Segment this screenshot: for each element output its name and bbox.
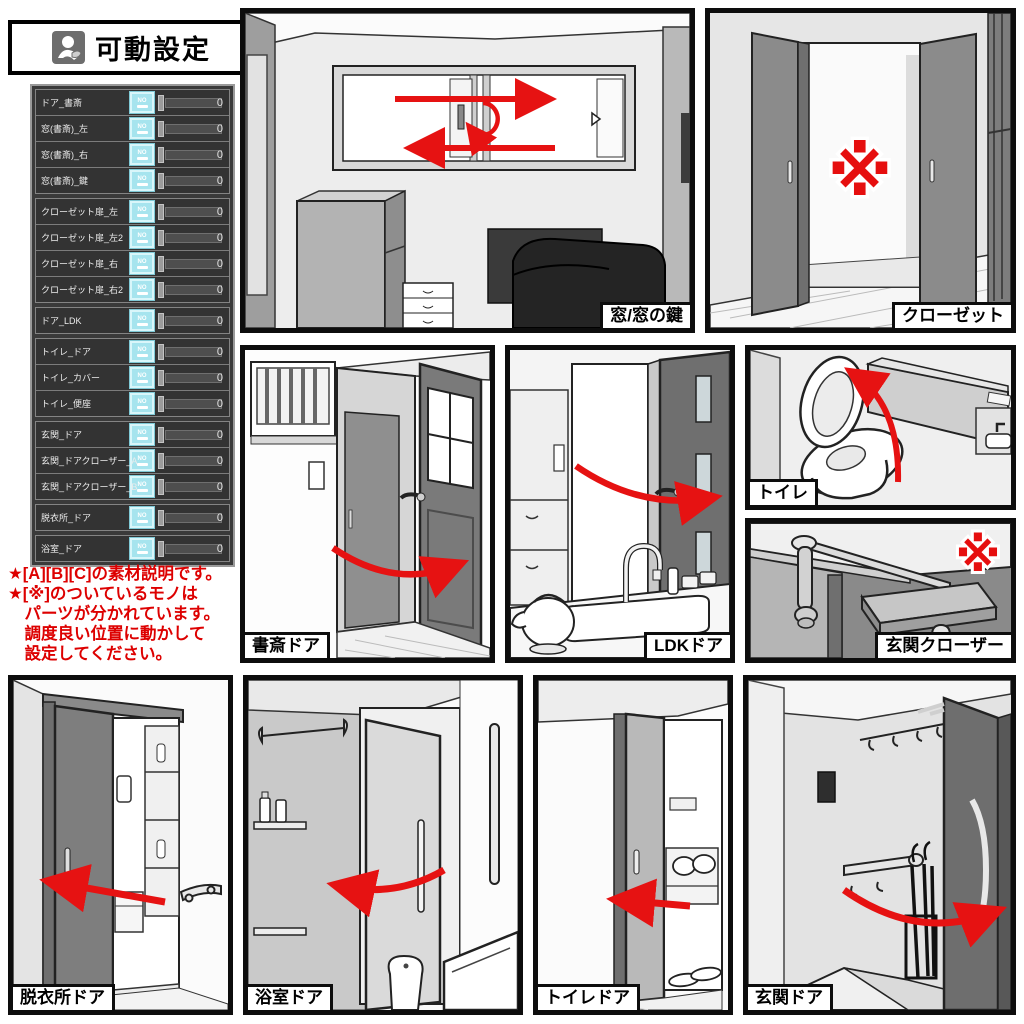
note-line: ★[※]のついているモノは: [8, 584, 240, 604]
ldk-door-illustration: [510, 350, 730, 658]
note-line: ★[A][B][C]の素材説明です。: [8, 564, 240, 584]
slider-value: 0: [217, 429, 223, 441]
slider-control[interactable]: [158, 541, 222, 556]
slider-track[interactable]: [165, 347, 222, 357]
panel-entrance-door: 玄関ドア: [743, 675, 1016, 1015]
slider-group: 浴室_ドア NO 0: [35, 535, 230, 562]
window-illustration: [245, 13, 690, 328]
no-image-thumb-button[interactable]: NO: [129, 169, 155, 192]
note-line: 調度良い位置に動かして: [8, 624, 240, 644]
caption-bath-door: 浴室ドア: [248, 984, 333, 1010]
slider-handle[interactable]: [158, 541, 164, 557]
slider-control[interactable]: [158, 173, 222, 188]
slider-label: クローゼット扉_右: [41, 257, 118, 270]
slider-label: 玄関_ドアクローザー_B: [41, 480, 137, 493]
slider-value: 0: [217, 258, 223, 270]
slider-track[interactable]: [165, 544, 222, 554]
slider-group: クローゼット扉_左 NO 0 クローゼット扉_左2 NO 0 クローゼット扉_右…: [35, 198, 230, 303]
closet-door-right: [920, 34, 976, 314]
slider-handle[interactable]: [158, 344, 164, 360]
caption-ldk-door: LDKドア: [644, 632, 730, 658]
entrance-door: [944, 698, 998, 1010]
slider-label: ドア_LDK: [41, 314, 82, 327]
no-image-thumb-button[interactable]: NO: [129, 423, 155, 446]
caption-study-door: 書斎ドア: [245, 632, 330, 658]
slider-row: 窓(書斎)_右 NO 0: [36, 141, 229, 167]
slider-row: クローゼット扉_右2 NO 0: [36, 276, 229, 302]
slider-value: 0: [217, 97, 223, 109]
slider-control[interactable]: [158, 147, 222, 162]
toilet-door-illustration: [538, 680, 728, 1010]
window-lock: [458, 105, 464, 129]
panel-window: 窓/窓の鍵: [240, 8, 695, 333]
slider-control[interactable]: [158, 344, 222, 359]
slider-row: クローゼット扉_左 NO 0: [36, 199, 229, 224]
no-image-thumb-button[interactable]: NO: [129, 117, 155, 140]
slider-group: 脱衣所_ドア NO 0: [35, 504, 230, 531]
no-image-thumb-button[interactable]: NO: [129, 91, 155, 114]
caption-entrance-door: 玄関ドア: [748, 984, 833, 1010]
slider-row: 玄関_ドア NO 0: [36, 422, 229, 447]
panel-bath-door: 浴室ドア: [243, 675, 523, 1015]
slider-control[interactable]: [158, 479, 222, 494]
slider-group: ドア_LDK NO 0: [35, 307, 230, 334]
slider-track[interactable]: [165, 285, 222, 295]
slider-control[interactable]: [158, 121, 222, 136]
split-parts-mark: ※: [956, 529, 1001, 581]
no-image-thumb-button[interactable]: NO: [129, 309, 155, 332]
slider-row: 玄関_ドアクローザー_A NO 0: [36, 447, 229, 473]
slider-label: 脱衣所_ドア: [41, 511, 91, 524]
slider-track[interactable]: [165, 176, 222, 186]
slider-handle[interactable]: [158, 121, 164, 137]
slider-control[interactable]: [158, 396, 222, 411]
slider-group: 玄関_ドア NO 0 玄関_ドアクローザー_A NO 0 玄関_ドアクローザー_…: [35, 421, 230, 500]
no-image-thumb-button[interactable]: NO: [129, 537, 155, 560]
slider-handle[interactable]: [158, 313, 164, 329]
slider-track[interactable]: [165, 399, 222, 409]
ldk-door: [660, 352, 730, 602]
slider-track[interactable]: [165, 124, 222, 134]
slider-handle[interactable]: [158, 282, 164, 298]
slider-value: 0: [217, 346, 223, 358]
bath-door-illustration: [248, 680, 518, 1010]
slider-track[interactable]: [165, 513, 222, 523]
slider-label: 玄関_ドアクローザー_A: [41, 454, 137, 467]
slider-handle[interactable]: [158, 230, 164, 246]
slider-track[interactable]: [165, 259, 222, 269]
slider-handle[interactable]: [158, 370, 164, 386]
slider-value: 0: [217, 149, 223, 161]
no-image-thumb-button[interactable]: NO: [129, 143, 155, 166]
inner-sliding-door: [345, 412, 399, 628]
slider-control[interactable]: [158, 256, 222, 271]
no-image-thumb-button[interactable]: NO: [129, 278, 155, 301]
slider-row: トイレ_カバー NO 0: [36, 364, 229, 390]
caption-toilet-door: トイレドア: [538, 984, 640, 1010]
slider-handle[interactable]: [158, 453, 164, 469]
slider-handle[interactable]: [158, 256, 164, 272]
no-image-thumb-button[interactable]: NO: [129, 252, 155, 275]
panel-closet: ※ クローゼット: [705, 8, 1016, 333]
slider-row: 玄関_ドアクローザー_B NO 0: [36, 473, 229, 499]
usage-notes: ★[A][B][C]の素材説明です。 ★[※]のついているモノは パーツが分かれ…: [8, 564, 240, 664]
split-parts-mark: ※: [828, 135, 892, 209]
slider-handle[interactable]: [158, 95, 164, 111]
slider-value: 0: [217, 284, 223, 296]
slider-row: 脱衣所_ドア NO 0: [36, 505, 229, 530]
drawer-chest: [403, 283, 453, 328]
panel-study-door: 書斎ドア: [240, 345, 495, 663]
slider-control[interactable]: [158, 510, 222, 525]
slider-control[interactable]: [158, 230, 222, 245]
slider-value: 0: [217, 543, 223, 555]
slider-track[interactable]: [165, 233, 222, 243]
slider-label: トイレ_カバー: [41, 371, 100, 384]
slider-label: トイレ_ドア: [41, 345, 91, 358]
person-leaf-icon: [52, 31, 85, 64]
slider-label: 窓(書斎)_鍵: [41, 174, 88, 187]
slider-row: 窓(書斎)_左 NO 0: [36, 115, 229, 141]
material-person-icon: [52, 31, 85, 64]
slider-handle[interactable]: [158, 510, 164, 526]
slider-value: 0: [217, 481, 223, 493]
page-title: 可動設定: [95, 28, 211, 67]
slider-label: 窓(書斎)_右: [41, 148, 88, 161]
slider-label: クローゼット扉_右2: [41, 283, 123, 296]
slider-control[interactable]: [158, 204, 222, 219]
slider-control[interactable]: [158, 95, 222, 110]
slider-value: 0: [217, 206, 223, 218]
light-switch: [554, 445, 564, 471]
slider-track[interactable]: [165, 150, 222, 160]
slider-track[interactable]: [165, 98, 222, 108]
slider-row: 窓(書斎)_鍵 NO 0: [36, 167, 229, 193]
morph-slider-panel: ドア_書斎 NO 0 窓(書斎)_左 NO 0 窓(書斎)_右 NO 0 窓(書…: [30, 84, 235, 567]
no-image-thumb-button[interactable]: NO: [129, 226, 155, 249]
slider-track[interactable]: [165, 482, 222, 492]
slider-row: クローゼット扉_左2 NO 0: [36, 224, 229, 250]
slider-value: 0: [217, 455, 223, 467]
intercom-panel: [818, 772, 835, 802]
slider-value: 0: [217, 512, 223, 524]
dressing-door-illustration: [13, 680, 228, 1010]
toilet-sliding-door: [626, 714, 664, 1002]
slider-handle[interactable]: [158, 427, 164, 443]
slider-row: トイレ_便座 NO 0: [36, 390, 229, 416]
toilet-remote: [670, 798, 696, 810]
slider-control[interactable]: [158, 427, 222, 442]
no-image-thumb-button[interactable]: NO: [129, 506, 155, 529]
study-door-illustration: [245, 350, 490, 658]
slider-label: 窓(書斎)_左: [41, 122, 88, 135]
slider-label: ドア_書斎: [41, 96, 82, 109]
caption-toilet: トイレ: [750, 479, 818, 505]
slider-row: ドア_LDK NO 0: [36, 308, 229, 333]
slider-value: 0: [217, 123, 223, 135]
slider-track[interactable]: [165, 207, 222, 217]
caption-door-closer: 玄関クローザー: [875, 632, 1011, 658]
slider-label: トイレ_便座: [41, 397, 91, 410]
no-image-thumb-button[interactable]: NO: [129, 392, 155, 415]
slider-label: クローゼット扉_左2: [41, 231, 123, 244]
paper-holder-shelf: [666, 848, 718, 904]
no-image-thumb-button[interactable]: NO: [129, 200, 155, 223]
slider-row: 浴室_ドア NO 0: [36, 536, 229, 561]
slider-handle[interactable]: [158, 479, 164, 495]
slider-handle[interactable]: [158, 147, 164, 163]
door-handle-bar: [418, 820, 424, 912]
slider-control[interactable]: [158, 282, 222, 297]
slider-control[interactable]: [158, 453, 222, 468]
slider-value: 0: [217, 175, 223, 187]
slider-handle[interactable]: [158, 173, 164, 189]
panel-door-closer: ※ 玄関クローザー: [745, 518, 1016, 663]
caption-dressing-door: 脱衣所ドア: [13, 984, 115, 1010]
bookcase: [297, 201, 385, 328]
page: 可動設定 ドア_書斎 NO 0 窓(書斎)_左 NO 0 窓(書斎)_右 NO …: [0, 0, 1024, 1024]
note-line: パーツが分かれています。: [8, 604, 240, 624]
towel-holder: [117, 776, 131, 802]
slider-track[interactable]: [165, 430, 222, 440]
title-box: 可動設定: [8, 20, 275, 75]
panel-toilet-door: トイレドア: [533, 675, 733, 1015]
slider-value: 0: [217, 398, 223, 410]
no-image-thumb-button[interactable]: NO: [129, 366, 155, 389]
no-image-thumb-button[interactable]: NO: [129, 340, 155, 363]
caption-closet: クローゼット: [892, 302, 1011, 328]
slider-track[interactable]: [165, 373, 222, 383]
slider-value: 0: [217, 372, 223, 384]
panel-dressing-door: 脱衣所ドア: [8, 675, 233, 1015]
slider-label: 玄関_ドア: [41, 428, 82, 441]
slider-track[interactable]: [165, 456, 222, 466]
slider-control[interactable]: [158, 313, 222, 328]
light-switch: [309, 462, 324, 489]
slider-handle[interactable]: [158, 204, 164, 220]
slider-row: トイレ_ドア NO 0: [36, 339, 229, 364]
slider-value: 0: [217, 232, 223, 244]
slider-handle[interactable]: [158, 396, 164, 412]
sliding-pocket-door: [55, 706, 113, 1002]
slider-label: 浴室_ドア: [41, 542, 82, 555]
slider-group: ドア_書斎 NO 0 窓(書斎)_左 NO 0 窓(書斎)_右 NO 0 窓(書…: [35, 89, 230, 194]
slider-group: トイレ_ドア NO 0 トイレ_カバー NO 0 トイレ_便座 NO 0: [35, 338, 230, 417]
panel-toilet: トイレ: [745, 345, 1016, 510]
note-line: 設定してください。: [8, 644, 240, 664]
slider-value: 0: [217, 315, 223, 327]
grab-bar: [490, 724, 499, 884]
caption-window: 窓/窓の鍵: [600, 302, 690, 328]
closet-illustration: ※: [710, 13, 1011, 328]
slider-control[interactable]: [158, 370, 222, 385]
hand-basin: [986, 434, 1011, 448]
entrance-door-illustration: [748, 680, 1011, 1010]
slider-row: ドア_書斎 NO 0: [36, 90, 229, 115]
slider-row: クローゼット扉_右 NO 0: [36, 250, 229, 276]
slider-track[interactable]: [165, 316, 222, 326]
panel-ldk-door: LDKドア: [505, 345, 735, 663]
slider-label: クローゼット扉_左: [41, 205, 118, 218]
